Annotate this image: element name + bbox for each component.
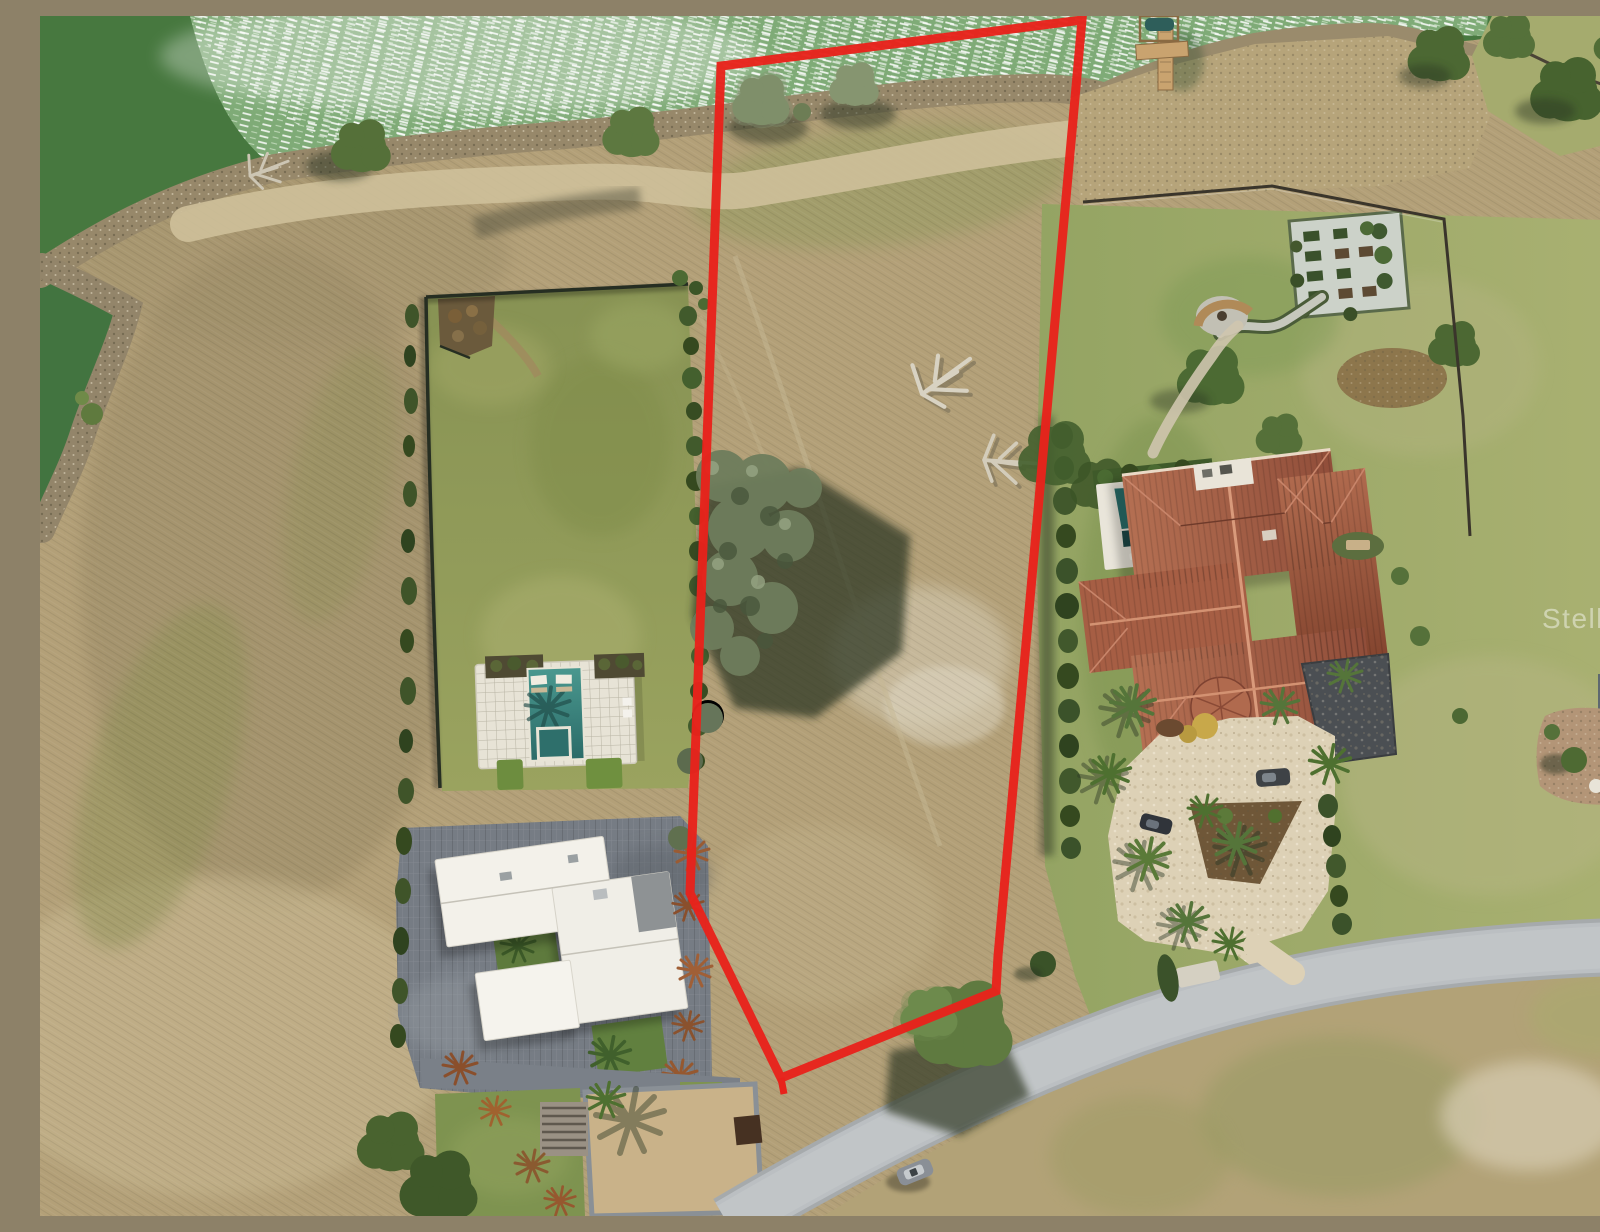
- spa: [537, 728, 570, 759]
- aerial-photo-canvas: Stellar MLS: [40, 16, 1600, 1216]
- boat-on-lift: [1145, 18, 1174, 31]
- bench-garden: [1332, 532, 1384, 560]
- pergola: [540, 1102, 588, 1156]
- right-estate: [1018, 186, 1600, 1041]
- roof-section-dark: [631, 871, 676, 932]
- parked-car: [1255, 768, 1290, 787]
- aerial-photo: Stellar MLS: [40, 16, 1600, 1216]
- turf-strip: [586, 758, 623, 789]
- roof-section: [475, 960, 580, 1041]
- left-home: [396, 816, 712, 1098]
- garden-mat: [734, 1115, 763, 1146]
- watermark-text: Stellar MLS: [1542, 603, 1600, 634]
- lot-boundary-stub: [781, 1078, 784, 1094]
- turf-strip: [497, 759, 524, 790]
